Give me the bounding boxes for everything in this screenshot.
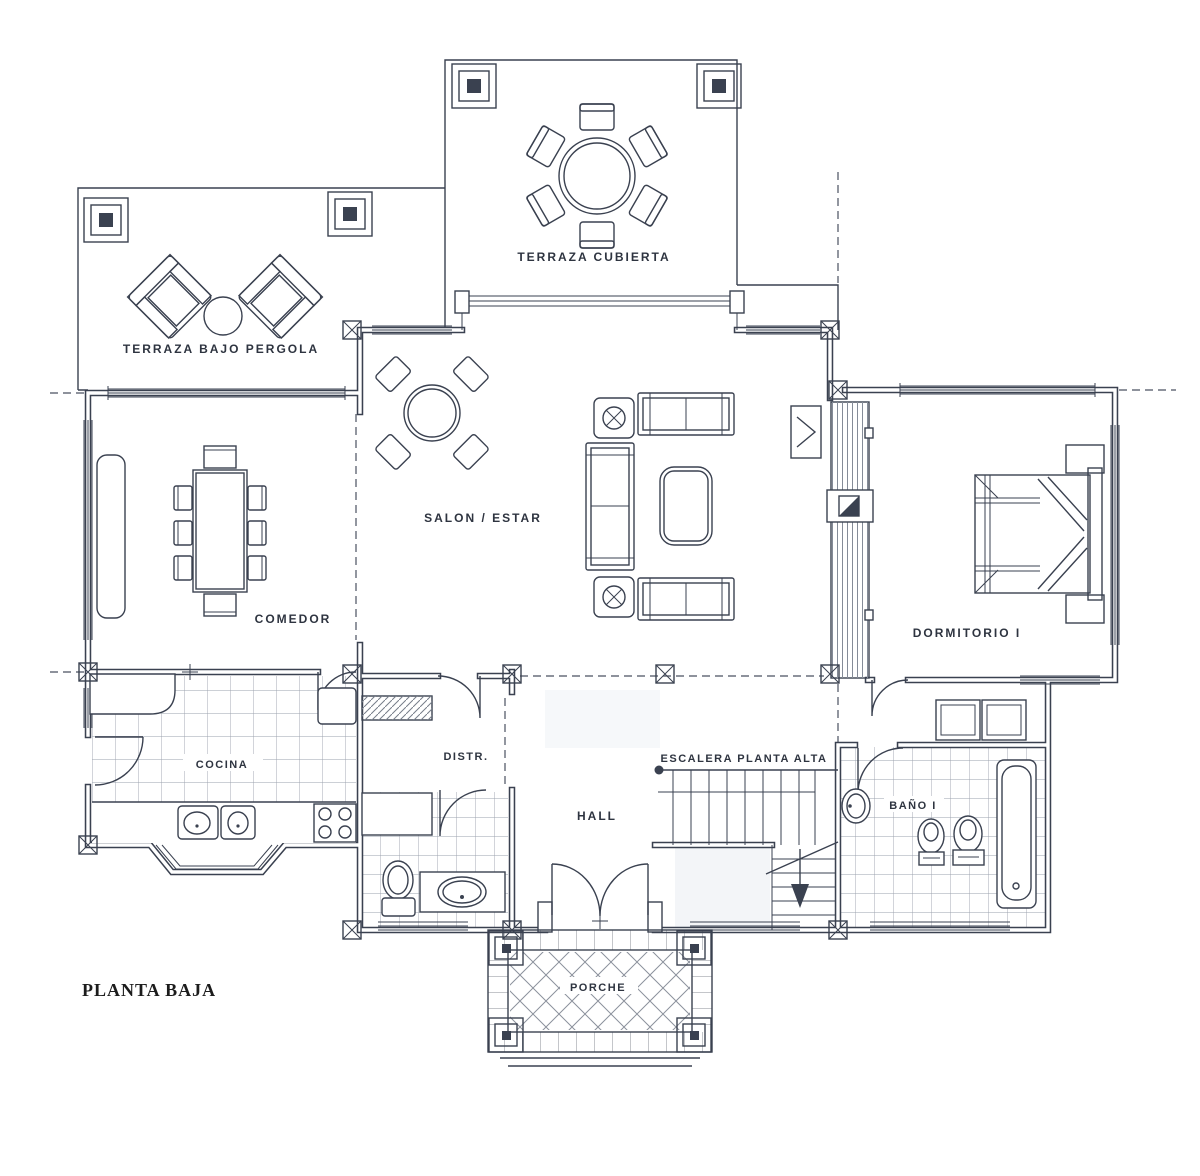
kitchen-counter bbox=[90, 674, 175, 714]
porch bbox=[488, 930, 712, 1066]
floor-plan-drawing: TERRAZA CUBIERTA TERRAZA BAJO PERGOLA SA… bbox=[0, 0, 1200, 1176]
terrace-glass-door bbox=[455, 291, 744, 330]
window bbox=[108, 386, 345, 400]
built-in-wardrobe bbox=[827, 402, 873, 678]
pedestal-sink bbox=[842, 789, 870, 823]
nightstand bbox=[1066, 595, 1104, 623]
room-label-distr: DISTR. bbox=[443, 751, 488, 763]
room-label-comedor: COMEDOR bbox=[255, 612, 332, 626]
side-table-lamp-bottom bbox=[594, 577, 634, 617]
salon-round-table bbox=[404, 385, 460, 441]
stair-break-line bbox=[766, 842, 838, 874]
bedroom-closet bbox=[936, 700, 1026, 740]
sofa-top bbox=[638, 393, 734, 435]
room-label-terraza-cubierta: TERRAZA CUBIERTA bbox=[517, 250, 670, 264]
bathtub bbox=[997, 760, 1036, 908]
window bbox=[900, 383, 1095, 397]
pergola-column bbox=[328, 192, 372, 236]
room-label-porche: PORCHE bbox=[570, 982, 626, 994]
room-label-dormitorio: DORMITORIO I bbox=[913, 626, 1021, 640]
distributor-fittings bbox=[362, 696, 432, 720]
terrace-outlines bbox=[78, 60, 838, 390]
pergola-side-table bbox=[204, 297, 242, 335]
bed-blanket-fold bbox=[1038, 477, 1087, 591]
room-label-terraza-pergola: TERRAZA BAJO PERGOLA bbox=[123, 342, 319, 356]
pergola-column bbox=[84, 198, 128, 242]
sofa-left bbox=[586, 443, 634, 570]
entry-double-door bbox=[538, 864, 662, 932]
bedroom-furniture bbox=[975, 445, 1104, 623]
sideboard bbox=[97, 455, 125, 618]
terrace-column bbox=[452, 64, 496, 108]
side-table-lamp-top bbox=[594, 398, 634, 438]
fridge bbox=[318, 688, 356, 724]
shower-tray bbox=[362, 793, 432, 835]
pergola-seating bbox=[128, 255, 323, 340]
closet-hatched bbox=[362, 696, 432, 720]
bay-window bbox=[156, 845, 278, 869]
coffee-table bbox=[660, 467, 712, 545]
dining-table bbox=[193, 470, 247, 592]
fireplace bbox=[791, 406, 821, 458]
sofa-bottom bbox=[638, 578, 734, 620]
toilet bbox=[382, 861, 415, 916]
nightstand bbox=[1066, 445, 1104, 473]
toilet bbox=[953, 816, 984, 865]
room-label-salon: SALON / ESTAR bbox=[424, 511, 542, 525]
porch-steps bbox=[500, 1058, 700, 1066]
room-label-hall: HALL bbox=[577, 809, 617, 823]
door-distr bbox=[438, 676, 480, 718]
room-label-cocina: COCINA bbox=[196, 759, 248, 771]
living-room-furniture bbox=[375, 356, 821, 620]
stair-direction-arrow bbox=[791, 884, 809, 908]
plan-title: PLANTA BAJA bbox=[82, 980, 216, 1000]
door-bedroom bbox=[872, 680, 908, 716]
floor-plan-sheet: TERRAZA CUBIERTA TERRAZA BAJO PERGOLA SA… bbox=[0, 0, 1200, 1176]
terrace-column bbox=[697, 64, 741, 108]
room-label-bano: BAÑO I bbox=[889, 799, 937, 812]
terrace-round-dining-set bbox=[526, 104, 668, 248]
room-label-escalera: ESCALERA PLANTA ALTA bbox=[661, 753, 828, 765]
bidet bbox=[918, 819, 944, 865]
dining-room-furniture bbox=[97, 446, 266, 618]
wc-sink bbox=[420, 872, 505, 912]
